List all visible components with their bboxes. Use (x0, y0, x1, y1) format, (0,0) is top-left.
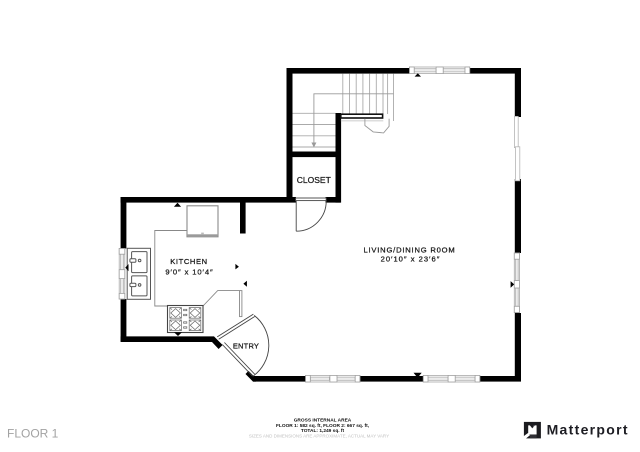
svg-text:KITCHEN: KITCHEN (170, 257, 208, 266)
svg-text:CLOSET: CLOSET (297, 175, 331, 185)
svg-text:SIZES AND DIMENSIONS ARE APPRO: SIZES AND DIMENSIONS ARE APPROXIMATE, AC… (249, 433, 389, 438)
svg-text:Matterport: Matterport (547, 421, 629, 437)
svg-text:ENTRY: ENTRY (233, 341, 259, 350)
svg-text:20′10″ x 23′6″: 20′10″ x 23′6″ (381, 255, 441, 264)
svg-text:FLOOR 1: 582 sq. ft, FLOOR 2:: FLOOR 1: 582 sq. ft, FLOOR 2: 667 sq. ft… (276, 423, 370, 429)
svg-text:GROSS INTERNAL AREA: GROSS INTERNAL AREA (294, 418, 352, 424)
svg-text:FLOOR 1: FLOOR 1 (7, 427, 59, 441)
svg-text:9′0″ x 10′4″: 9′0″ x 10′4″ (165, 268, 213, 277)
svg-text:LIVING/DINING R0OM: LIVING/DINING R0OM (363, 246, 455, 255)
